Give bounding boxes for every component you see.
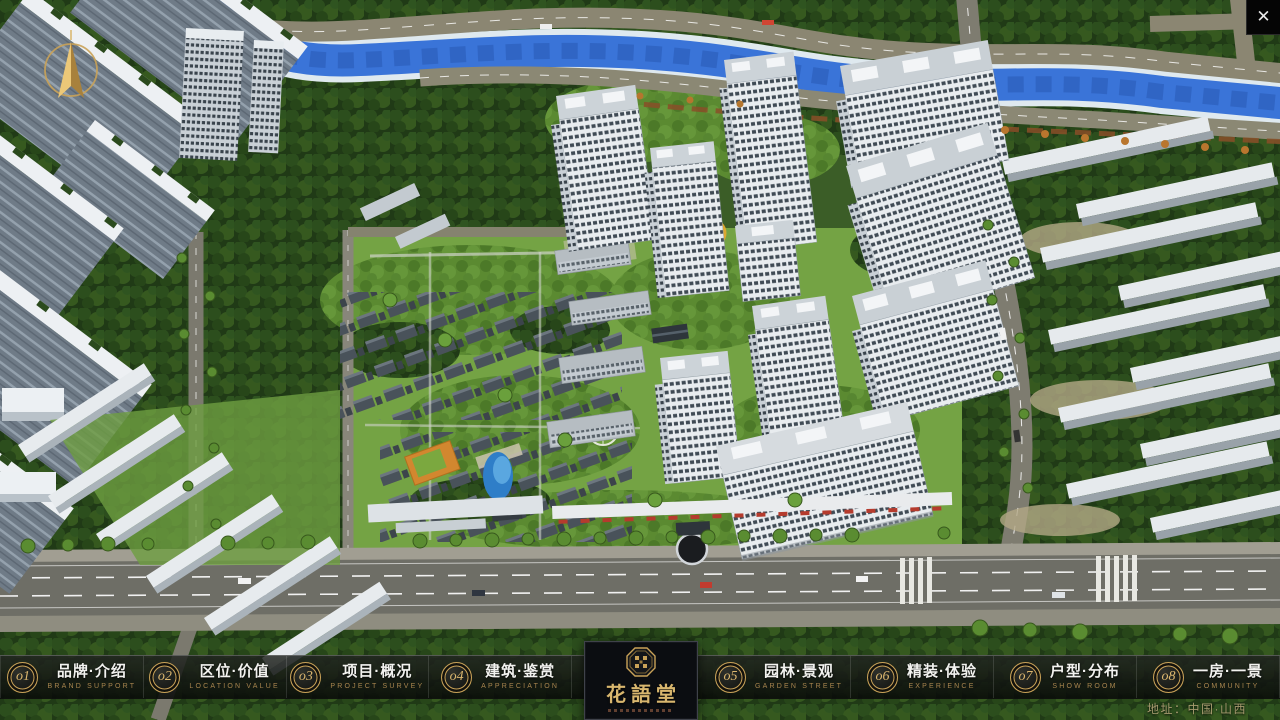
project-address: 地址：中国·山西 bbox=[1147, 700, 1247, 717]
nav-number-badge: o2 bbox=[149, 662, 180, 693]
nav-number-badge: o8 bbox=[1153, 662, 1184, 693]
nav-item-unit-distribution[interactable]: o7 户型·分布 SHOW ROOM bbox=[994, 656, 1137, 698]
nav-item-architecture[interactable]: o4 建筑·鉴赏 APPRECIATION bbox=[429, 656, 572, 698]
nav-group-right: o5 园林·景观 GARDEN STREET o6 精装·体验 EXPERIEN… bbox=[708, 656, 1280, 698]
nav-number-badge: o1 bbox=[7, 662, 38, 693]
nav-item-garden-landscape[interactable]: o5 园林·景观 GARDEN STREET bbox=[708, 656, 851, 698]
nav-item-label: 户型·分布 bbox=[1050, 664, 1120, 680]
nav-item-subtitle: SHOW ROOM bbox=[1052, 683, 1117, 690]
nav-number-badge: o5 bbox=[715, 662, 746, 693]
nav-item-project-survey[interactable]: o3 项目·概况 PROJECT SURVEY bbox=[287, 656, 430, 698]
close-icon: ✕ bbox=[1256, 7, 1270, 27]
nav-number-badge: o6 bbox=[867, 662, 898, 693]
nav-item-label: 精装·体验 bbox=[907, 664, 977, 680]
project-logo-panel: 花語堂 bbox=[584, 641, 698, 720]
nav-item-label: 区位·价值 bbox=[200, 664, 270, 680]
nav-item-location-value[interactable]: o2 区位·价值 LOCATION VALUE bbox=[144, 656, 287, 698]
nav-group-left: o1 品牌·介绍 BRAND SUPPORT o2 区位·价值 LOCATION… bbox=[0, 656, 572, 698]
presentation-window: ✕ o1 品牌·介绍 BRAND SUPPORT o2 区位·价值 LOCATI… bbox=[0, 0, 1280, 720]
nav-item-label: 品牌·介绍 bbox=[57, 664, 127, 680]
nav-item-subtitle: PROJECT SURVEY bbox=[330, 683, 424, 690]
nav-number-badge: o3 bbox=[290, 662, 321, 693]
nav-item-subtitle: EXPERIENCE bbox=[908, 683, 975, 690]
nav-item-label: 建筑·鉴赏 bbox=[485, 664, 555, 680]
nav-item-subtitle: GARDEN STREET bbox=[755, 683, 843, 690]
seal-icon bbox=[626, 647, 656, 677]
northwest-towers bbox=[179, 28, 284, 161]
nav-item-subtitle: APPRECIATION bbox=[481, 683, 559, 690]
nav-item-label: 园林·景观 bbox=[764, 664, 834, 680]
nav-item-subtitle: BRAND SUPPORT bbox=[47, 683, 136, 690]
nav-item-label: 一房·一景 bbox=[1193, 664, 1263, 680]
compass-icon bbox=[36, 28, 106, 108]
nav-item-one-room-one-view[interactable]: o8 一房·一景 COMMUNITY bbox=[1137, 656, 1280, 698]
nav-item-interior-experience[interactable]: o6 精装·体验 EXPERIENCE bbox=[851, 656, 994, 698]
nav-number-badge: o4 bbox=[441, 662, 472, 693]
tower bbox=[735, 220, 801, 302]
logo-tagline bbox=[608, 709, 674, 712]
nav-number-badge: o7 bbox=[1010, 662, 1041, 693]
nav-item-brand-intro[interactable]: o1 品牌·介绍 BRAND SUPPORT bbox=[0, 656, 144, 698]
nav-item-subtitle: COMMUNITY bbox=[1197, 683, 1260, 690]
nav-item-label: 项目·概况 bbox=[342, 664, 412, 680]
close-button[interactable]: ✕ bbox=[1246, 0, 1280, 35]
project-name: 花語堂 bbox=[601, 678, 681, 707]
nav-item-subtitle: LOCATION VALUE bbox=[189, 683, 279, 690]
aerial-site-render[interactable] bbox=[0, 0, 1280, 720]
